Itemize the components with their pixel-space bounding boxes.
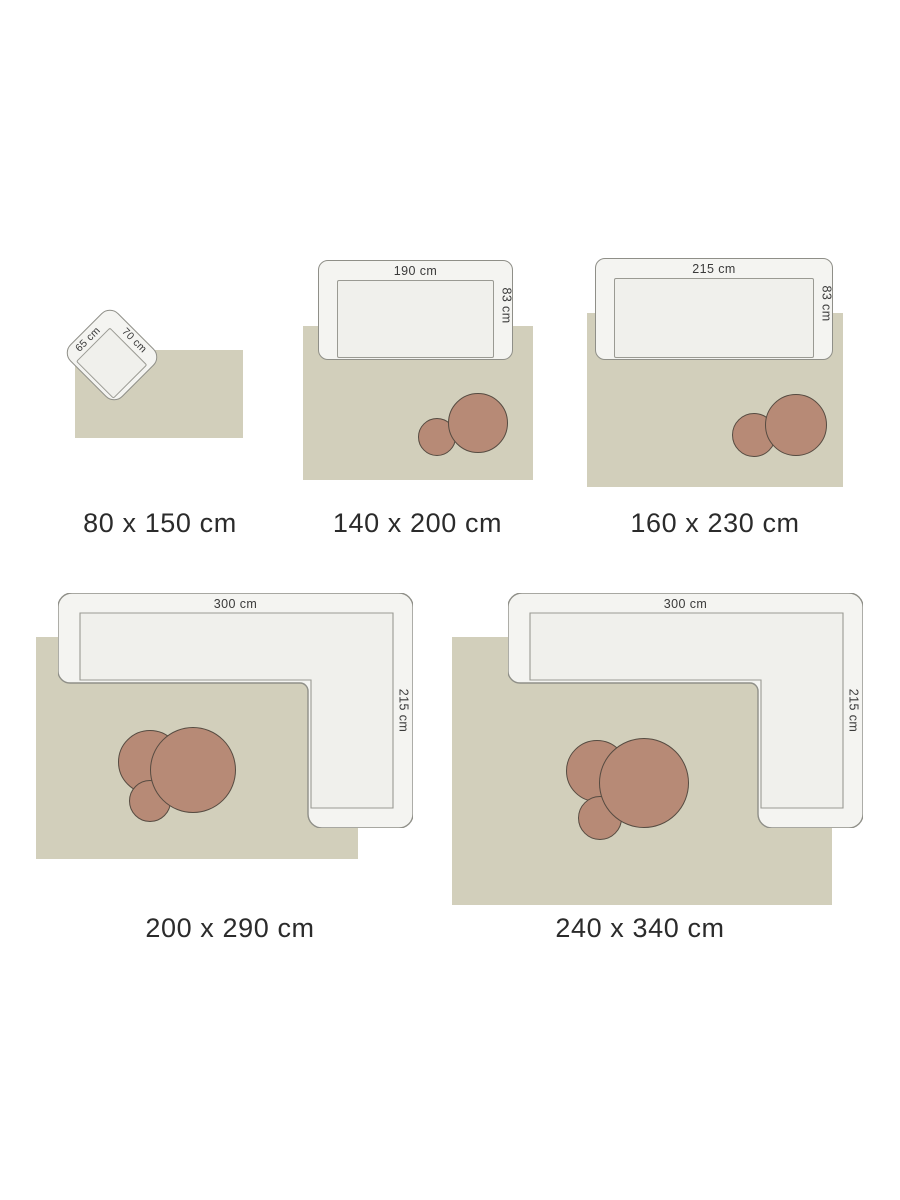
sofa-depth-label: 215 cm <box>397 689 410 733</box>
size-option-240x340: 300 cm 215 cm 240 x 340 cm <box>440 585 880 960</box>
sofa-depth-label: 215 cm <box>847 689 860 733</box>
size-option-200x290: 300 cm 215 cm 200 x 290 cm <box>30 585 430 960</box>
pouf-large <box>765 394 827 456</box>
sofa-width-label: 300 cm <box>508 598 863 611</box>
sofa-width-label: 190 cm <box>319 265 512 278</box>
sofa-top-view: 190 cm 83 cm <box>318 260 513 360</box>
size-caption: 80 x 150 cm <box>60 507 260 539</box>
pouf-large <box>448 393 508 453</box>
size-option-140x200: 190 cm 83 cm 140 x 200 cm <box>300 255 535 545</box>
rug-size-guide-diagram: 70 cm 65 cm 80 x 150 cm 190 cm 83 cm 140… <box>0 0 900 1200</box>
pouf-large <box>599 738 689 828</box>
size-option-80x150: 70 cm 65 cm 80 x 150 cm <box>60 305 260 545</box>
sofa-width-label: 215 cm <box>596 263 832 276</box>
sofa-depth-label: 83 cm <box>500 284 513 328</box>
size-caption: 160 x 230 cm <box>585 507 845 539</box>
sofa-width-label: 300 cm <box>58 598 413 611</box>
size-option-160x230: 215 cm 83 cm 160 x 230 cm <box>585 253 845 543</box>
sofa-seat <box>337 280 494 358</box>
size-caption: 200 x 290 cm <box>30 912 430 944</box>
sofa-seat <box>614 278 814 358</box>
sofa-top-view: 215 cm 83 cm <box>595 258 833 360</box>
sofa-depth-label: 83 cm <box>820 282 833 326</box>
size-caption: 140 x 200 cm <box>300 507 535 539</box>
size-caption: 240 x 340 cm <box>440 912 840 944</box>
pouf-large <box>150 727 236 813</box>
corner-sofa-top-view <box>58 593 413 828</box>
